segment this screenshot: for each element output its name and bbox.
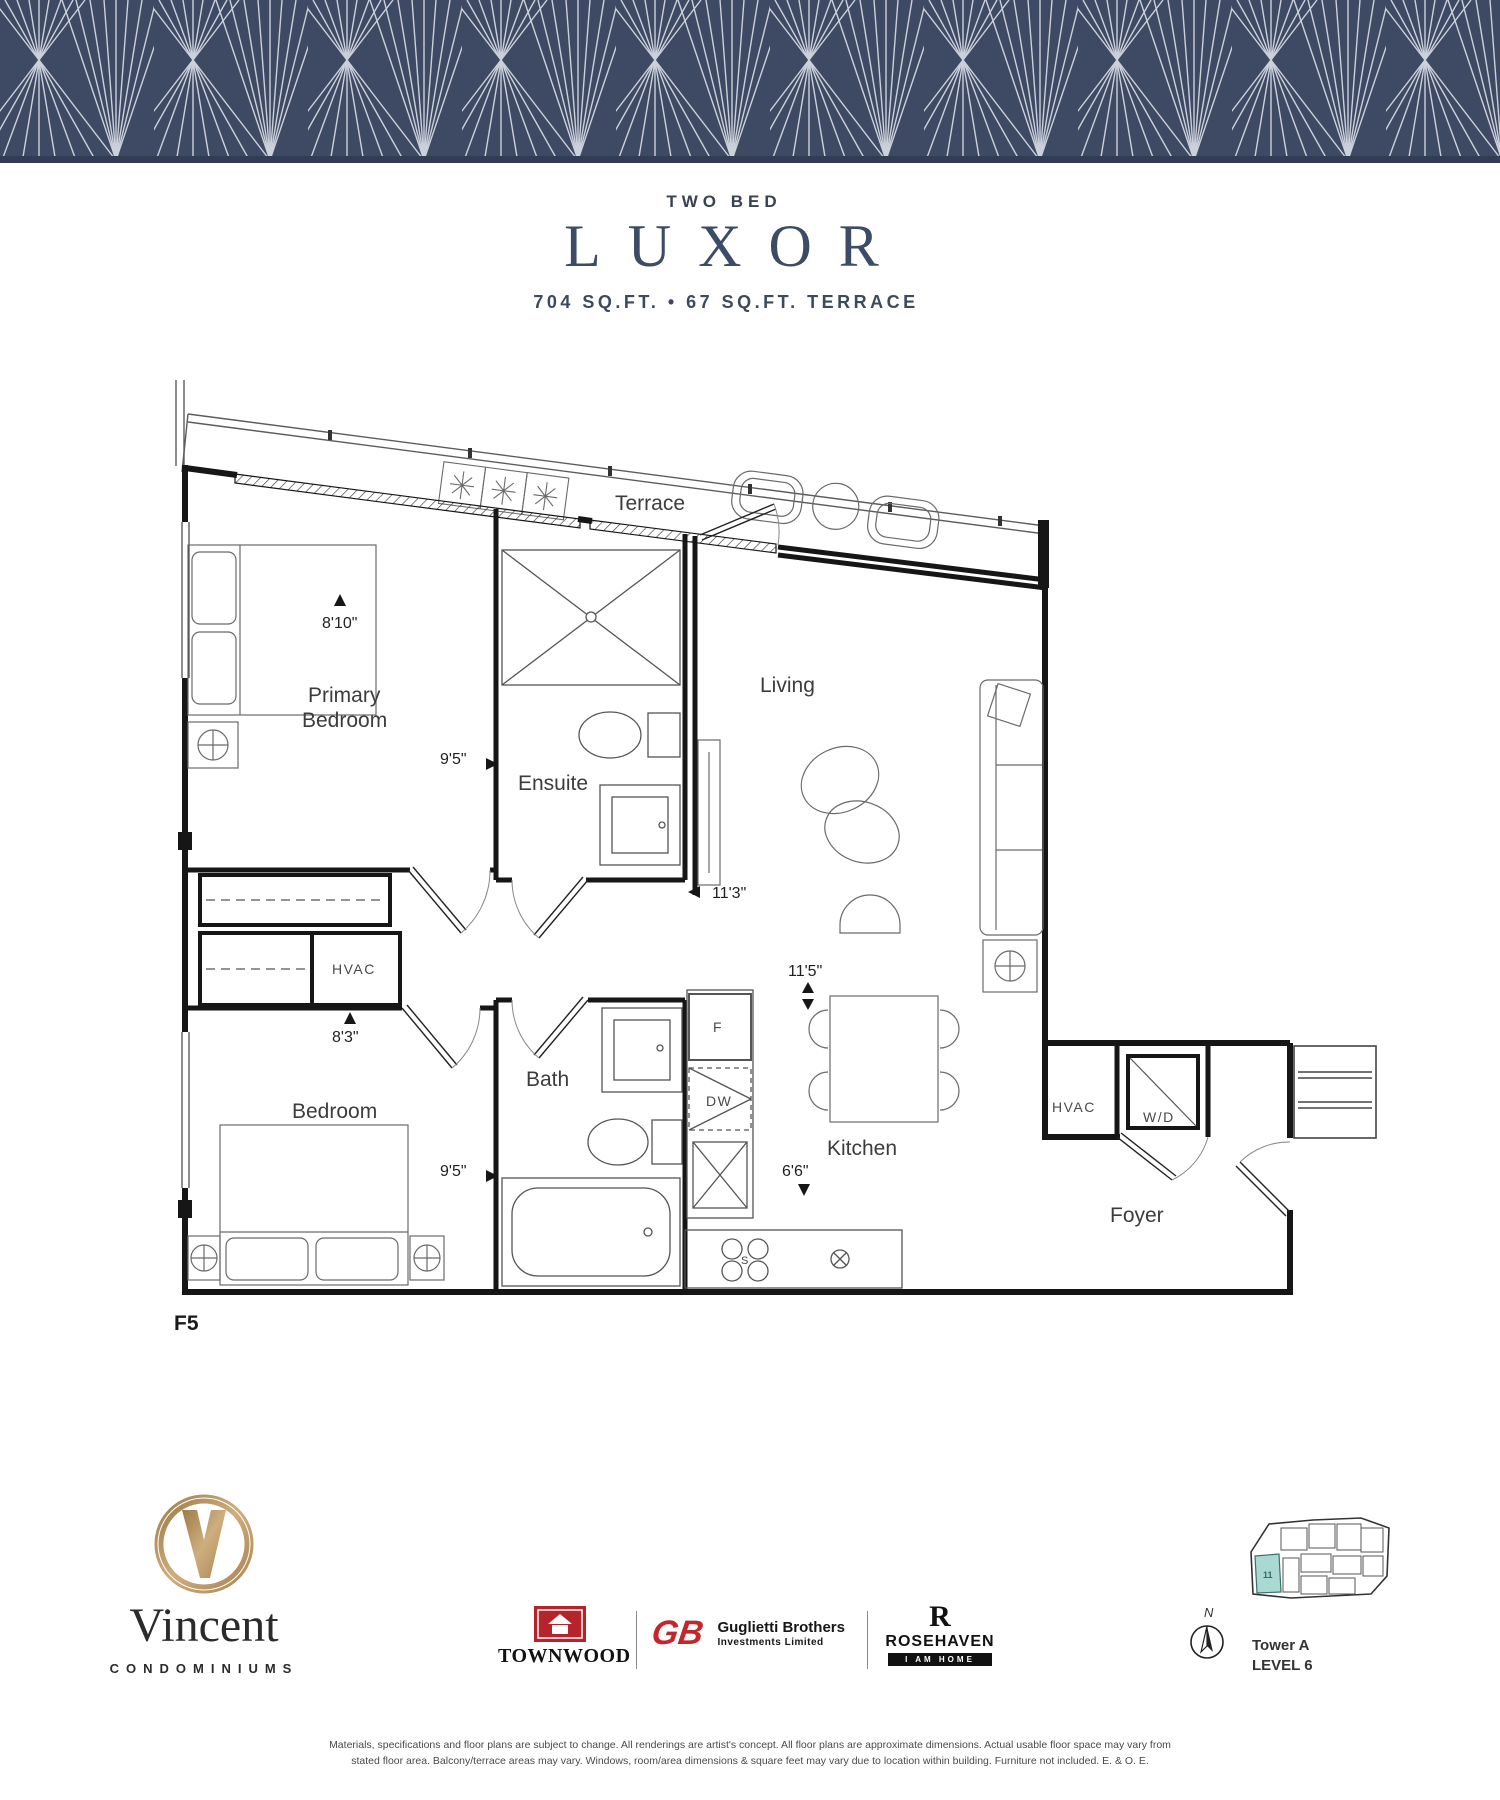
- guglietti-subtitle: Investments Limited: [717, 1637, 845, 1648]
- dim-arrow-up: [334, 594, 346, 606]
- plan-name: LUXOR: [0, 212, 1470, 281]
- townwood-logo: TOWNWOOD: [498, 1606, 622, 1668]
- wall-pier: [178, 1200, 192, 1218]
- primary-bedroom-label-2: Bedroom: [302, 709, 387, 732]
- fridge-label: F: [713, 1019, 723, 1035]
- guglietti-name: Guglietti Brothers: [717, 1619, 845, 1636]
- townwood-wordmark: TOWNWOOD: [498, 1645, 622, 1668]
- keyplan-unit-number: 11: [1263, 1570, 1273, 1580]
- ensuite-label: Ensuite: [518, 772, 588, 795]
- dim-arrow-down: [802, 999, 814, 1010]
- rosehaven-logo: R ROSEHAVEN I AM HOME: [880, 1602, 1000, 1666]
- hvac-closet-label: HVAC: [332, 961, 376, 977]
- area-line: 704 SQ.FT. • 67 SQ.FT. TERRACE: [0, 292, 1452, 313]
- hvac-foyer-label: HVAC: [1052, 1099, 1096, 1115]
- dishwasher-label: DW: [706, 1093, 732, 1109]
- ensuite-fixtures: [502, 550, 680, 865]
- vincent-logo: Vincent CONDOMINIUMS: [94, 1492, 314, 1676]
- art-deco-pattern: [0, 0, 1500, 163]
- townwood-house-icon: [534, 1606, 586, 1642]
- dim-living: 11'3": [712, 885, 746, 902]
- disclaimer: Materials, specifications and floor plan…: [200, 1738, 1300, 1770]
- vincent-wordmark: Vincent: [94, 1598, 314, 1653]
- terrace-label: Terrace: [615, 492, 685, 515]
- dim-arrow-down: [798, 1184, 810, 1196]
- vincent-subtitle: CONDOMINIUMS: [94, 1661, 314, 1676]
- dim-kitchen-depth: 6'6": [782, 1163, 809, 1180]
- unit-type-label: TWO BED: [0, 192, 1448, 212]
- bath-label: Bath: [526, 1068, 569, 1091]
- header-banner: [0, 0, 1500, 163]
- dim-arrow-up: [344, 1012, 356, 1024]
- north-arrow: N: [1183, 1604, 1231, 1671]
- brochure-page: TWO BED LUXOR 704 SQ.FT. • 67 SQ.FT. TER…: [0, 0, 1500, 1800]
- logo-divider: [867, 1611, 868, 1669]
- entry-closet: [1294, 1046, 1376, 1138]
- rosehaven-tagline: I AM HOME: [888, 1653, 992, 1666]
- logo-divider: [636, 1611, 637, 1669]
- compass-icon: N: [1184, 1604, 1230, 1666]
- tower-label: Tower A: [1252, 1636, 1313, 1656]
- guglietti-monogram-icon: GB: [649, 1614, 705, 1653]
- floor-plan: Terrace: [140, 380, 1400, 1340]
- dim-ensuite: 9'5": [440, 751, 467, 768]
- primary-bed: [188, 545, 376, 768]
- dining-set: [809, 996, 959, 1122]
- exterior-walls: [182, 465, 1293, 1295]
- kitchen-label: Kitchen: [827, 1137, 897, 1160]
- tower-level-label: Tower A LEVEL 6: [1252, 1636, 1313, 1675]
- terrace-railing: [176, 380, 1045, 534]
- dim-bath: 9'5": [440, 1163, 467, 1180]
- level-label: LEVEL 6: [1252, 1656, 1313, 1676]
- rosehaven-crest-icon: R: [880, 1602, 1000, 1632]
- dim-bedroom: 8'3": [332, 1029, 359, 1046]
- dim-primary: 8'10": [322, 615, 357, 632]
- north-label: N: [1204, 1605, 1214, 1620]
- bath-fixtures: [502, 1008, 682, 1286]
- keyplan: 11: [1243, 1516, 1395, 1633]
- disclaimer-line-2: stated floor area. Balcony/terrace areas…: [200, 1754, 1300, 1770]
- stove-label: S: [741, 1255, 748, 1267]
- dim-arrow-up: [802, 982, 814, 993]
- disclaimer-line-1: Materials, specifications and floor plan…: [200, 1738, 1300, 1754]
- floor-plan-drawing: Terrace: [140, 380, 1400, 1340]
- bedroom-label: Bedroom: [292, 1100, 377, 1123]
- rosehaven-wordmark: ROSEHAVEN: [880, 1633, 1000, 1651]
- unit-code: F5: [174, 1312, 199, 1335]
- dim-kitchen-width: 11'5": [788, 963, 822, 980]
- bedroom-bed: [188, 1125, 444, 1285]
- living-label: Living: [760, 674, 815, 697]
- keyplan-drawing: 11: [1243, 1516, 1395, 1628]
- wd-label: W/D: [1143, 1109, 1175, 1125]
- wall-pier: [178, 832, 192, 850]
- guglietti-logo: GB Guglietti Brothers Investments Limite…: [652, 1614, 857, 1653]
- foyer-label: Foyer: [1110, 1204, 1164, 1227]
- primary-bedroom-label-1: Primary: [308, 684, 381, 707]
- living-furniture: [698, 680, 1043, 992]
- vincent-monogram-icon: [152, 1492, 256, 1596]
